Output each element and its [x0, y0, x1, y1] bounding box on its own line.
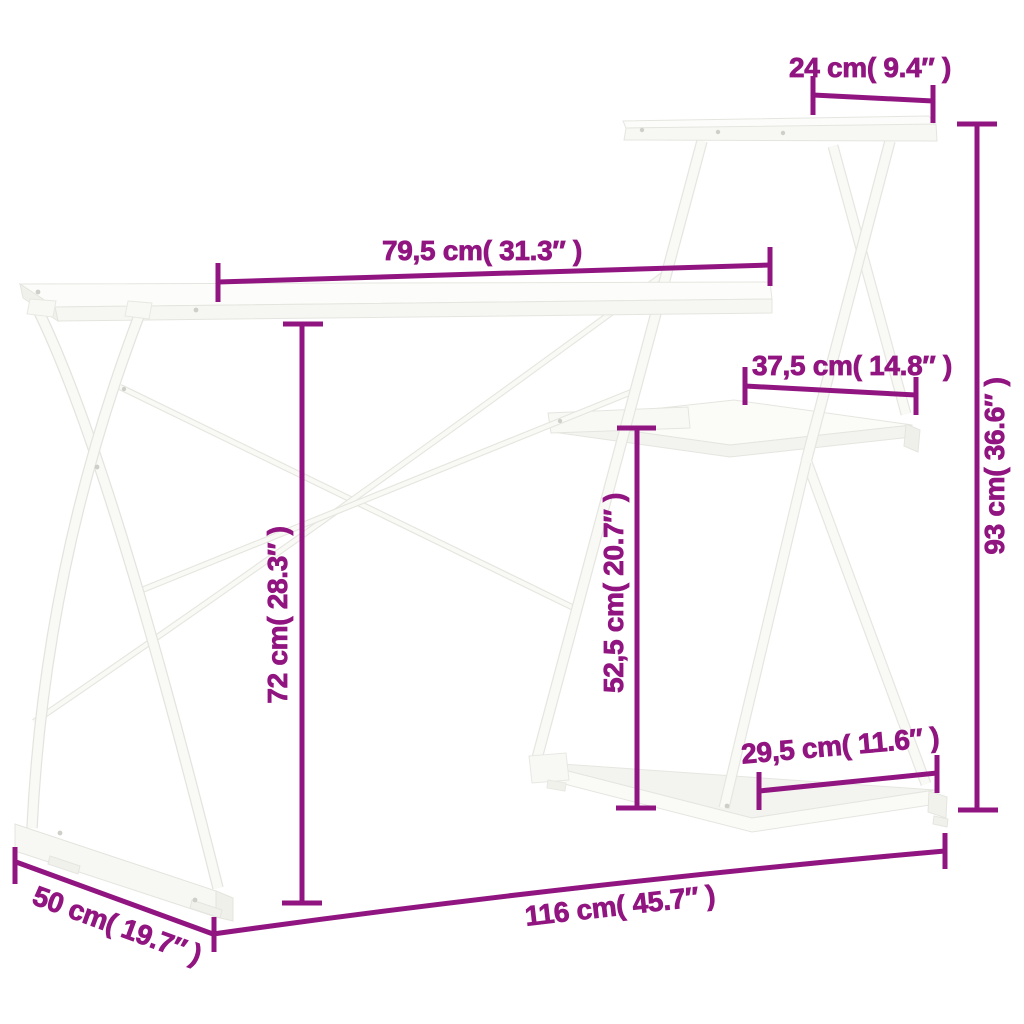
- svg-text:37,5 cm( 14.8″ ): 37,5 cm( 14.8″ ): [752, 350, 952, 381]
- svg-text:72 cm( 28.3″ ): 72 cm( 28.3″ ): [262, 526, 293, 703]
- svg-text:24 cm( 9.4″ ): 24 cm( 9.4″ ): [789, 52, 951, 83]
- svg-text:79,5 cm( 31.3″ ): 79,5 cm( 31.3″ ): [382, 235, 582, 266]
- svg-text:93 cm( 36.6″ ): 93 cm( 36.6″ ): [979, 377, 1010, 554]
- svg-text:52,5 cm( 20.7″ ): 52,5 cm( 20.7″ ): [598, 493, 629, 693]
